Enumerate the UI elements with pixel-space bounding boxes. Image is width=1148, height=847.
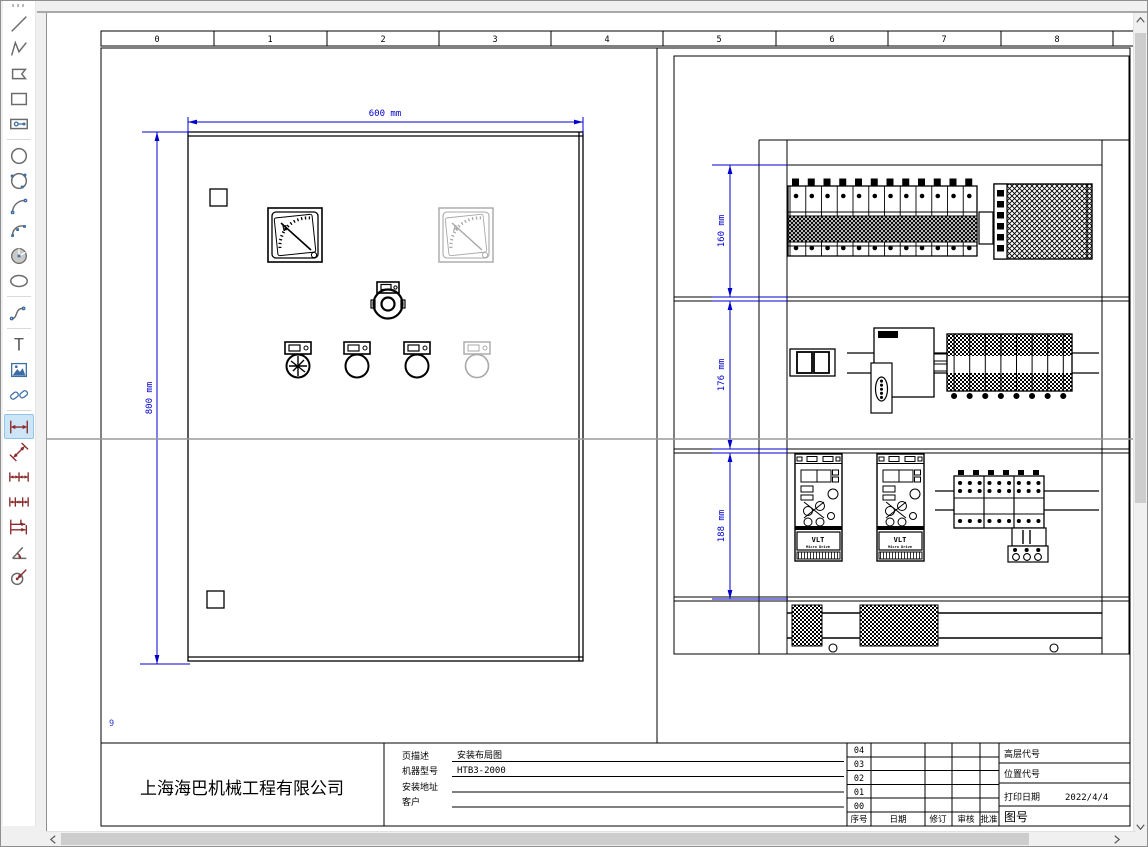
svg-text:高层代号: 高层代号 <box>1004 748 1040 760</box>
vertical-scroll-thumb[interactable] <box>1135 33 1146 503</box>
arc-icon <box>8 195 30 217</box>
dim-baseline-icon <box>8 516 30 538</box>
breaker-row <box>788 182 993 256</box>
svg-text:00: 00 <box>854 802 864 812</box>
dim-chain-2-tool-button[interactable] <box>4 489 34 514</box>
circle-tool-button[interactable] <box>4 143 34 168</box>
svg-text:04: 04 <box>854 746 864 756</box>
svg-text:8: 8 <box>1054 35 1059 45</box>
svg-text:V: V <box>282 224 287 233</box>
toolbar-separator <box>7 410 31 411</box>
arc-3point-tool-button[interactable] <box>4 218 34 243</box>
app-window: T <box>0 0 1148 847</box>
toolbar-grip[interactable] <box>12 4 26 7</box>
ellipse-icon <box>8 270 30 292</box>
svg-text:188 mm: 188 mm <box>717 510 727 543</box>
ellipse-tool-button[interactable] <box>4 268 34 293</box>
text-tool-button[interactable]: T <box>4 332 34 357</box>
text-icon: T <box>8 334 30 356</box>
chevron-down-icon <box>1136 824 1145 830</box>
polygon-icon <box>8 63 30 85</box>
power-supply <box>994 184 1092 259</box>
circle-icon <box>8 145 30 167</box>
dim-baseline-tool-button[interactable] <box>4 514 34 539</box>
image-tool-button[interactable] <box>4 357 34 382</box>
svg-text:修订: 修订 <box>929 814 947 825</box>
dim-chain-2-icon <box>8 491 30 513</box>
scroll-up-button[interactable] <box>1134 13 1147 27</box>
svg-text:800 mm: 800 mm <box>145 382 155 415</box>
toolbar-separator <box>7 296 31 297</box>
polygon-tool-button[interactable] <box>4 61 34 86</box>
slot-tool-button[interactable] <box>4 111 34 136</box>
svg-text:页描述: 页描述 <box>402 750 429 762</box>
polyline-tool-button[interactable] <box>4 36 34 61</box>
company-name: 上海海巴机械工程有限公司 <box>140 779 344 799</box>
hyperlink-tool-button[interactable] <box>4 382 34 407</box>
drawing-toolbar: T <box>3 1 36 826</box>
spline-icon <box>8 302 30 324</box>
svg-text:02: 02 <box>854 774 864 784</box>
contactor-group <box>954 473 1044 529</box>
svg-text:01: 01 <box>854 788 864 798</box>
aux-device <box>790 349 835 376</box>
push-button-2 <box>344 342 370 378</box>
rectangle-icon <box>8 88 30 110</box>
svg-text:A: A <box>453 224 458 233</box>
svg-text:5: 5 <box>716 35 721 45</box>
polyline-icon <box>8 38 30 60</box>
svg-text:2022/4/4: 2022/4/4 <box>1065 793 1108 803</box>
hyperlink-icon <box>8 384 30 406</box>
column-ruler <box>101 31 1137 46</box>
line-tool-button[interactable] <box>4 11 34 36</box>
dim-aligned-tool-button[interactable] <box>4 439 34 464</box>
svg-text:序号: 序号 <box>850 814 867 825</box>
svg-text:日期: 日期 <box>889 815 906 825</box>
push-button-4 <box>464 342 490 378</box>
selector-switch <box>371 282 405 319</box>
interior-layout-drawing: VLT Micro Drive VLT Micro <box>674 56 1129 654</box>
relay-row <box>947 334 1072 396</box>
vfd2-model: Micro Drive <box>888 545 913 549</box>
line-icon <box>8 13 30 35</box>
horizontal-scroll-thumb[interactable] <box>61 833 1029 845</box>
revision-table: 04 03 02 01 00 序号 日期 修订 审核 批准 <box>850 746 998 825</box>
dim-horizontal-tool-button[interactable] <box>4 414 34 439</box>
title-fields: 页描述 安装布局图 机器型号 HTB3-2000 安装地址 客户 <box>402 749 506 808</box>
slot-icon <box>8 113 30 135</box>
mounting-hole-bottom <box>207 591 224 608</box>
chevron-left-icon <box>50 835 56 844</box>
terminal-rail <box>787 605 1102 652</box>
push-button-1 <box>285 342 311 378</box>
plate-hole-right <box>1050 644 1058 652</box>
dim-radius-tool-button[interactable] <box>4 564 34 589</box>
circle-3point-icon <box>8 170 30 192</box>
dim-600: 600 mm <box>188 109 583 134</box>
mounting-hole-top <box>210 189 227 206</box>
circle-3point-tool-button[interactable] <box>4 168 34 193</box>
dim-aligned-icon <box>8 441 30 463</box>
arc-3point-icon <box>8 220 30 242</box>
chevron-up-icon <box>1136 17 1145 23</box>
drawing-canvas[interactable]: 01 23 45 67 8 <box>46 13 1137 834</box>
svg-text:安装布局图: 安装布局图 <box>457 749 502 761</box>
svg-text:安装地址: 安装地址 <box>402 781 438 793</box>
voltmeter: V <box>268 208 322 262</box>
svg-text:位置代号: 位置代号 <box>1004 768 1040 780</box>
pie-tool-button[interactable] <box>4 243 34 268</box>
svg-text:6: 6 <box>829 35 834 45</box>
svg-text:03: 03 <box>854 760 864 770</box>
vertical-scrollbar[interactable] <box>1133 13 1147 834</box>
dim-160: 160 mm <box>712 165 788 297</box>
dim-chain-icon <box>8 466 30 488</box>
vfd1-model: Micro Drive <box>806 545 831 549</box>
page-number: 9 <box>109 719 114 729</box>
vfd2-brand: VLT <box>894 536 907 544</box>
dim-188: 188 mm <box>712 453 788 599</box>
svg-text:客户: 客户 <box>402 796 420 808</box>
scrollbar-corner <box>1134 832 1147 846</box>
dim-176: 176 mm <box>712 301 788 449</box>
spline-tool-button[interactable] <box>4 300 34 325</box>
svg-text:0: 0 <box>154 35 159 45</box>
chevron-right-icon <box>1114 835 1120 844</box>
plc <box>871 328 947 413</box>
svg-text:3: 3 <box>492 35 497 45</box>
svg-text:T: T <box>14 335 24 354</box>
toolbar-separator <box>7 139 31 140</box>
svg-text:审核: 审核 <box>957 814 975 825</box>
dim-angle-tool-button[interactable] <box>4 539 34 564</box>
push-button-3 <box>404 342 430 378</box>
svg-text:图号: 图号 <box>1004 810 1028 824</box>
title-block: 上海海巴机械工程有限公司 页描述 安装布局图 机器型号 HTB3-2000 安装… <box>140 743 1130 826</box>
info-block: 高层代号 位置代号 打印日期 2022/4/4 图号 <box>1004 748 1108 824</box>
arc-tool-button[interactable] <box>4 193 34 218</box>
aux-contact-block <box>1008 528 1048 562</box>
panel-door-drawing: V A <box>188 132 583 661</box>
dim-angle-icon <box>8 541 30 563</box>
dim-horizontal-icon <box>8 416 30 438</box>
dim-chain-tool-button[interactable] <box>4 464 34 489</box>
svg-text:4: 4 <box>604 35 609 45</box>
dim-radius-icon <box>8 566 30 588</box>
svg-text:打印日期: 打印日期 <box>1004 791 1040 803</box>
dimensions: 600 mm 800 mm 160 mm 176 mm <box>140 109 788 664</box>
pie-icon <box>8 245 30 267</box>
svg-text:2: 2 <box>380 35 385 45</box>
svg-text:160 mm: 160 mm <box>717 215 727 248</box>
svg-text:176 mm: 176 mm <box>717 359 727 392</box>
svg-text:1: 1 <box>267 35 272 45</box>
vfd1-brand: VLT <box>812 536 825 544</box>
scroll-right-button[interactable] <box>1110 832 1123 846</box>
svg-text:HTB3-2000: HTB3-2000 <box>457 766 506 776</box>
scroll-left-button[interactable] <box>46 832 59 846</box>
svg-text:600 mm: 600 mm <box>369 109 402 119</box>
toolbar-separator <box>7 328 31 329</box>
plate-hole-left <box>829 644 837 652</box>
horizontal-scrollbar[interactable] <box>46 831 1136 846</box>
sheet-svg: 01 23 45 67 8 <box>47 13 1137 834</box>
ammeter: A <box>439 208 493 262</box>
svg-text:7: 7 <box>941 35 946 45</box>
dim-800: 800 mm <box>140 132 190 664</box>
image-icon <box>8 359 30 381</box>
svg-text:机器型号: 机器型号 <box>402 765 438 777</box>
rectangle-tool-button[interactable] <box>4 86 34 111</box>
svg-text:批准: 批准 <box>980 814 998 825</box>
